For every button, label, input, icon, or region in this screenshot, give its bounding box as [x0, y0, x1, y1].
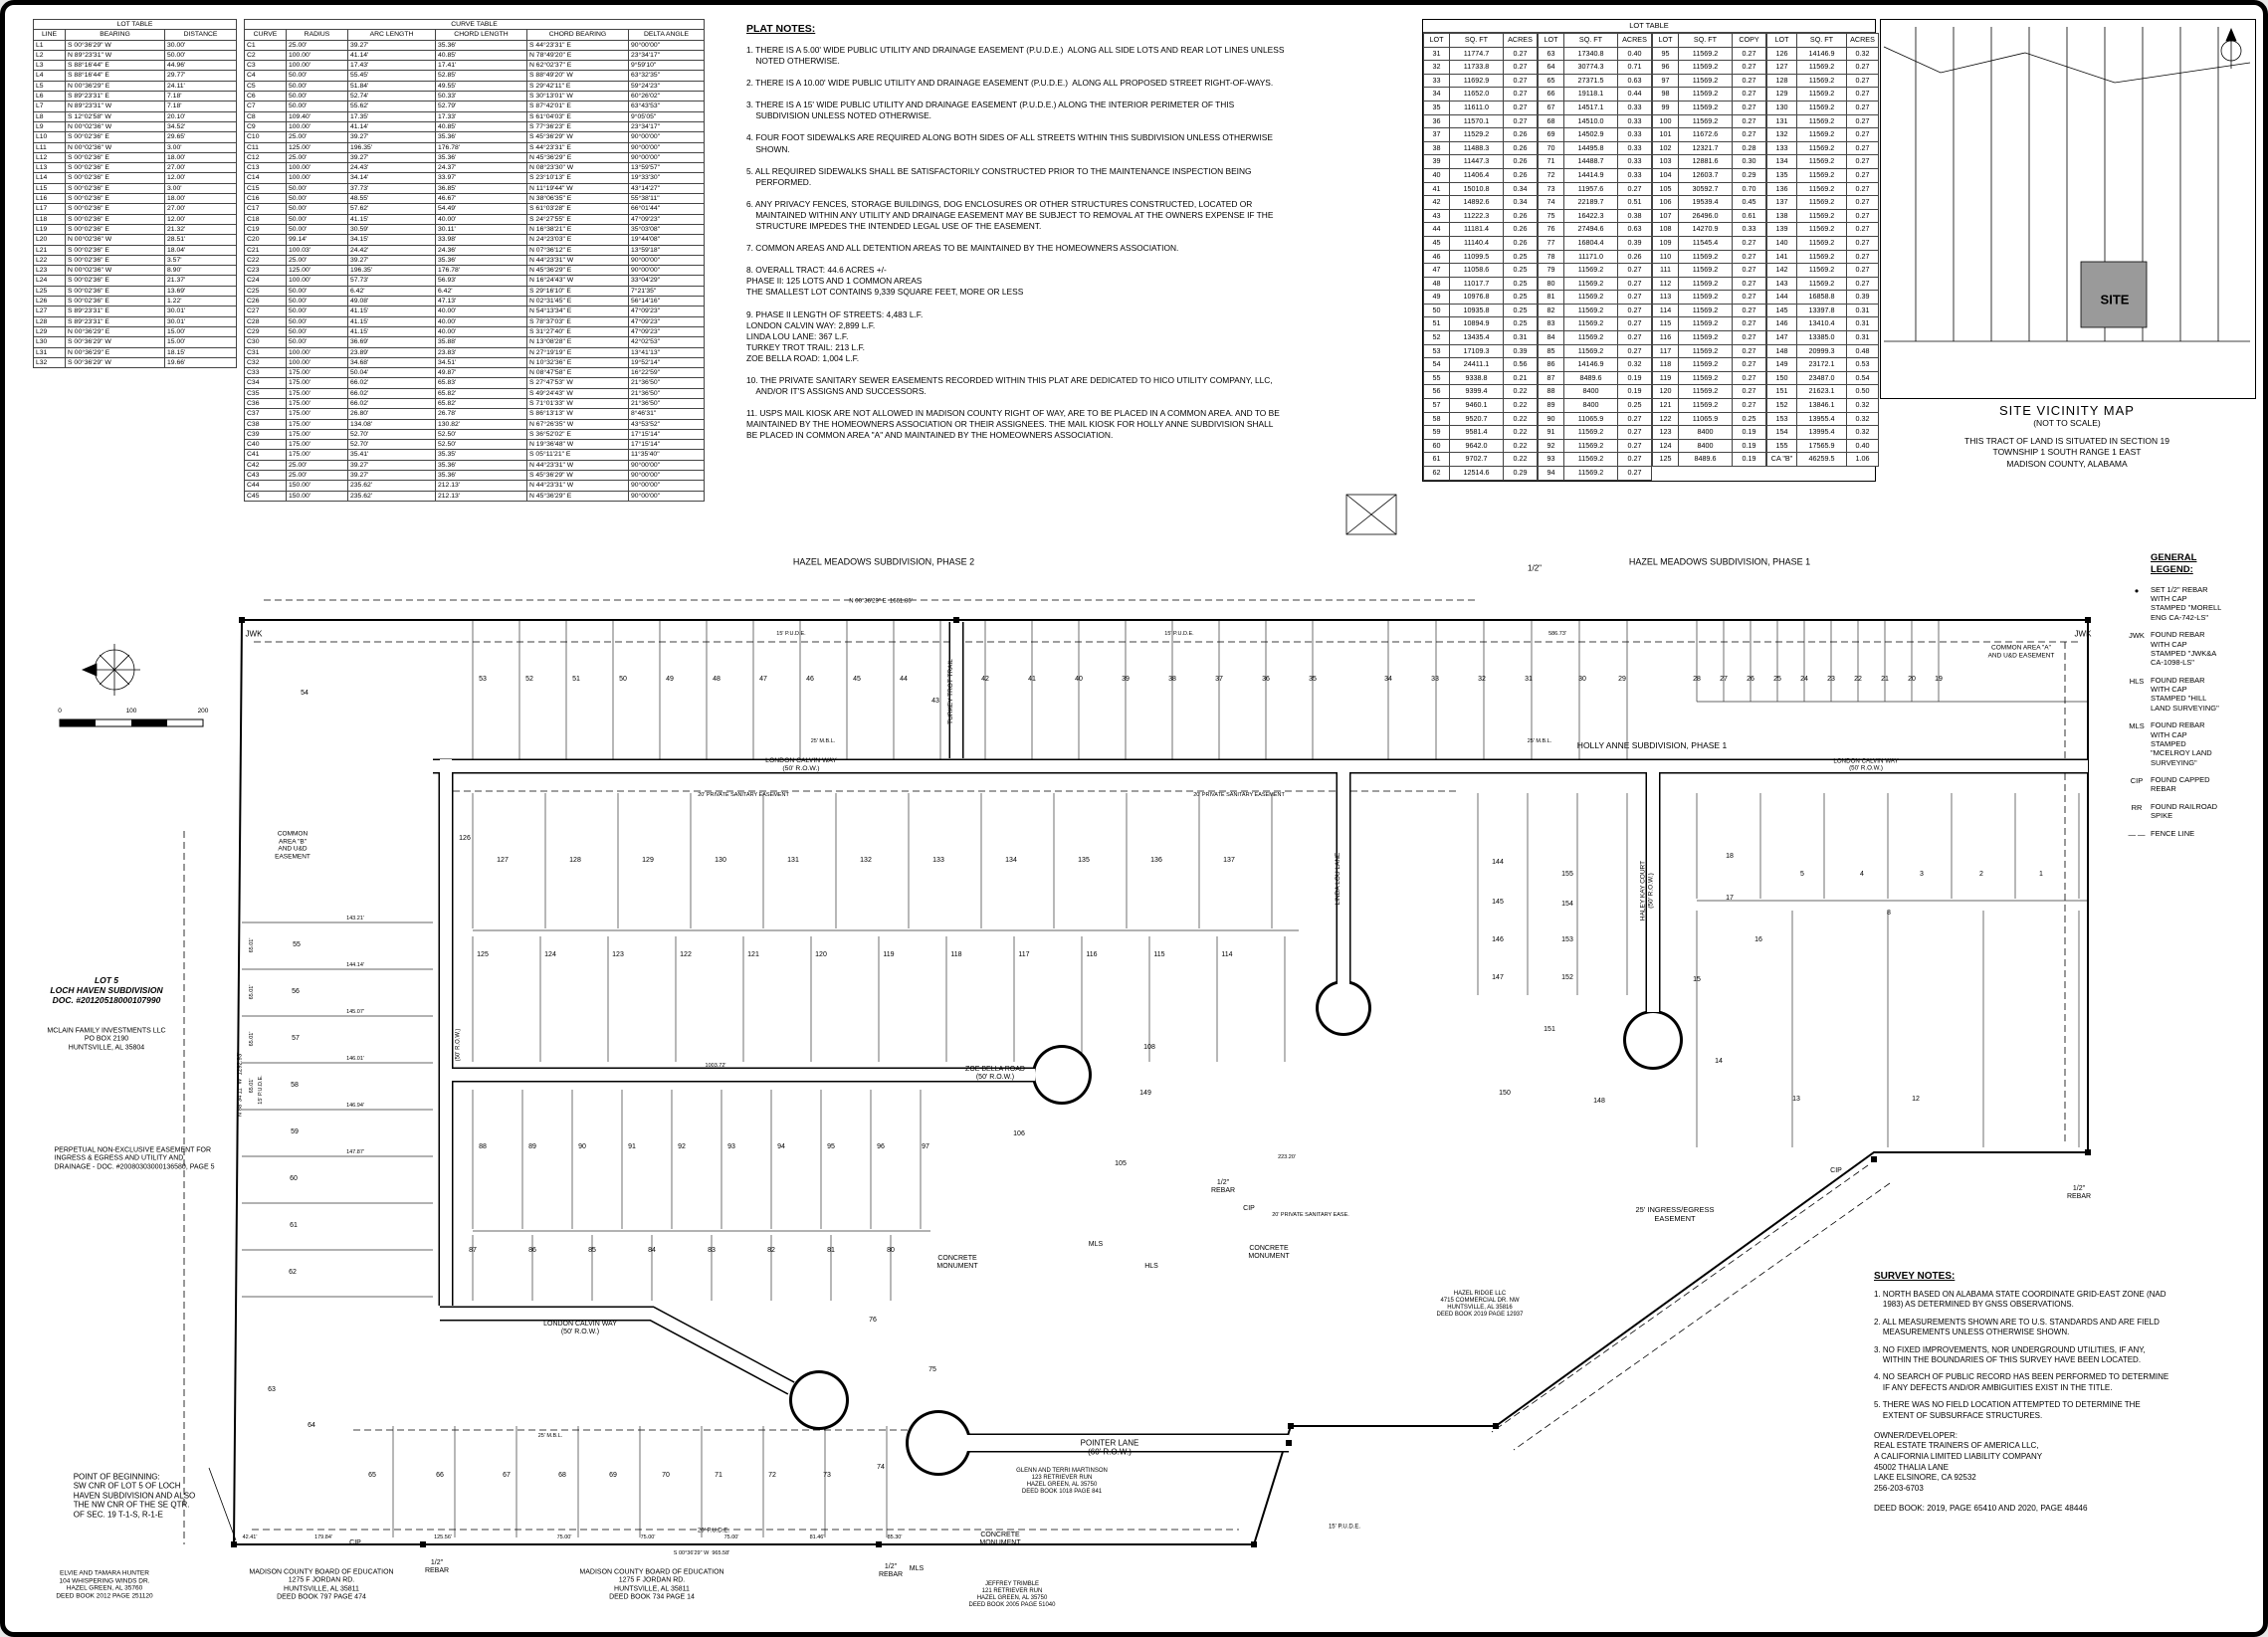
survey-note: 4. NO SEARCH OF PUBLIC RECORD HAS BEEN P… — [1874, 1372, 2264, 1393]
owner-developer-block: OWNER/DEVELOPER: REAL ESTATE TRAINERS OF… — [1874, 1431, 2264, 1494]
vicinity-north-arrow-icon — [2221, 29, 2241, 69]
hls-symbol: HLS — [2123, 676, 2151, 714]
fence-line-icon: — — — [2123, 829, 2151, 839]
legend-item: ● SET 1/2" REBAR WITH CAP STAMPED "MOREL… — [2123, 585, 2268, 623]
survey-notes: SURVEY NOTES: 1. NORTH BASED ON ALABAMA … — [1874, 1271, 2264, 1513]
survey-note: 5. THERE WAS NO FIELD LOCATION ATTEMPTED… — [1874, 1400, 2264, 1421]
survey-notes-title: SURVEY NOTES: — [1874, 1271, 2264, 1282]
legend-item: RR FOUND RAILROAD SPIKE — [2123, 802, 2268, 821]
legend-item: HLS FOUND REBAR WITH CAP STAMPED "HILL L… — [2123, 676, 2268, 714]
street-network — [433, 622, 2088, 1476]
survey-note: 1. NORTH BASED ON ALABAMA STATE COORDINA… — [1874, 1290, 2264, 1311]
mail-kiosk-detail — [1346, 495, 1396, 534]
legend-item: MLS FOUND REBAR WITH CAP STAMPED "MCELRO… — [2123, 720, 2268, 767]
general-legend: GENERAL LEGEND: ● SET 1/2" REBAR WITH CA… — [2123, 552, 2268, 847]
legend-item: CIP FOUND CAPPED REBAR — [2123, 775, 2268, 794]
legend-item: JWK FOUND REBAR WITH CAP STAMPED "JWK&A … — [2123, 630, 2268, 668]
mls-symbol: MLS — [2123, 720, 2151, 767]
rr-symbol: RR — [2123, 802, 2151, 821]
jwk-symbol: JWK — [2123, 630, 2151, 668]
legend-title: GENERAL LEGEND: — [2151, 552, 2268, 577]
vicinity-sketch — [1884, 27, 2250, 341]
survey-note: 2. ALL MEASUREMENTS SHOWN ARE TO U.S. ST… — [1874, 1318, 2264, 1338]
legend-item: — — FENCE LINE — [2123, 829, 2268, 839]
north-compass-icon — [83, 644, 140, 696]
scale-bar — [60, 719, 203, 726]
plat-sheet: LOT TABLE LINE BEARING DISTANCE L1S 00°3… — [0, 0, 2268, 1637]
set-rebar-icon: ● — [2123, 585, 2151, 623]
cip-symbol: CIP — [2123, 775, 2151, 794]
survey-note: 3. NO FIXED IMPROVEMENTS, NOR UNDERGROUN… — [1874, 1345, 2264, 1366]
deed-book-reference: DEED BOOK: 2019, PAGE 65410 AND 2020, PA… — [1874, 1504, 2264, 1513]
